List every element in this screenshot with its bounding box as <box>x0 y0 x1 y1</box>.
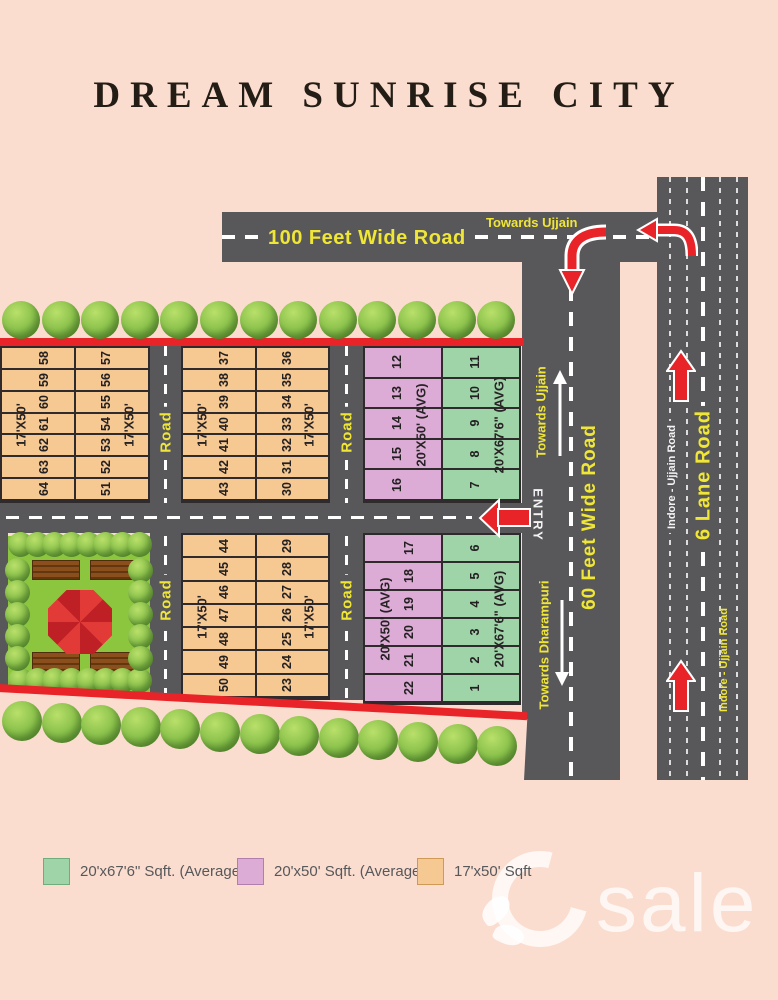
plot-number: 43 <box>217 482 231 496</box>
road-center-dashes <box>6 516 472 519</box>
plot-number: 64 <box>37 482 51 496</box>
plot-block-4: 4445464748495017'X50'2928272625242317'X5… <box>181 533 330 700</box>
plot-number: 31 <box>280 460 294 474</box>
plot-53: 53 <box>76 435 148 457</box>
legend-swatch-purple <box>237 858 264 885</box>
tree-icon <box>279 301 317 339</box>
plot-number: 11 <box>468 356 482 369</box>
plot-size-label: 17'X50' <box>194 403 209 447</box>
road-center-dashes <box>569 262 573 780</box>
plot-number: 27 <box>280 585 294 599</box>
plot-17: 17 <box>365 535 441 563</box>
plot-11: 11 <box>443 348 519 379</box>
plot-number: 25 <box>280 632 294 646</box>
plot-number: 9 <box>468 420 482 427</box>
plot-number: 6 <box>468 545 482 552</box>
plot-number: 24 <box>280 655 294 669</box>
tree-icon <box>200 712 240 752</box>
plot-4: 4 <box>443 591 519 619</box>
plot-35: 35 <box>257 370 329 392</box>
plot-number: 13 <box>390 386 404 400</box>
plot-number: 18 <box>402 569 416 583</box>
plot-54: 54 <box>76 414 148 436</box>
plot-21: 21 <box>365 647 441 675</box>
plot-column: 65432120'X67'6" (AVG) <box>441 535 519 703</box>
indore-ujjain-road-label-upper: Indore - Ujjain Road <box>665 421 679 533</box>
tree-icon <box>127 668 152 693</box>
plot-column: 3635343332313017'X50' <box>255 348 329 501</box>
plot-37: 37 <box>183 348 255 370</box>
plot-number: 10 <box>468 386 482 400</box>
plot-column: 121314151620'X50' (AVG) <box>365 348 441 501</box>
page-title: DREAM SUNRISE CITY <box>0 74 778 117</box>
plot-1: 1 <box>443 675 519 703</box>
plot-number: 19 <box>402 597 416 611</box>
tree-icon <box>279 716 319 756</box>
tree-icon <box>319 718 359 758</box>
tree-icon <box>160 301 198 339</box>
plot-size-label: 20'X50' (AVG) <box>414 383 429 466</box>
plot-27: 27 <box>257 582 329 605</box>
plot-25: 25 <box>257 628 329 651</box>
plot-5: 5 <box>443 563 519 591</box>
plot-size-label: 20'X67'6" (AVG) <box>492 376 507 473</box>
entry-label: ENTRY <box>531 488 546 542</box>
road-60-feet: Towards Ujjain 60 Feet Wide Road ENTRY T… <box>522 262 620 780</box>
plot-number: 30 <box>280 482 294 496</box>
road-6-lane-label: 6 Lane Road <box>692 406 717 544</box>
garden-park <box>8 536 150 698</box>
plot-number: 48 <box>217 632 231 646</box>
plot-number: 59 <box>37 373 51 387</box>
plot-column: 5756555453525117'X50' <box>74 348 148 501</box>
tree-icon <box>240 301 278 339</box>
tree-icon <box>319 301 357 339</box>
plot-10: 10 <box>443 379 519 410</box>
tree-icon <box>121 301 159 339</box>
tree-icon <box>438 724 478 764</box>
towards-dharampuri-label: Towards Dharampuri <box>537 580 552 709</box>
tree-icon <box>358 301 396 339</box>
plot-number: 55 <box>99 395 113 409</box>
plot-number: 34 <box>280 395 294 409</box>
legend-item-green: 20'x67'6" Sqft. (Average) <box>43 858 245 885</box>
plot-16: 16 <box>365 470 441 501</box>
plot-38: 38 <box>183 370 255 392</box>
plot-number: 12 <box>390 355 404 369</box>
lane-line <box>736 177 738 780</box>
towards-ujjain-label-60ft: Towards Ujjain <box>534 366 549 458</box>
plot-33: 33 <box>257 414 329 436</box>
plot-column: 5859606162636417'X50' <box>2 348 74 501</box>
plot-number: 62 <box>37 438 51 452</box>
tree-icon <box>42 301 80 339</box>
plot-number: 38 <box>217 373 231 387</box>
plot-20: 20 <box>365 619 441 647</box>
tree-icon <box>121 707 161 747</box>
plot-number: 46 <box>217 585 231 599</box>
plot-number: 20 <box>402 625 416 639</box>
plot-number: 49 <box>217 655 231 669</box>
plot-34: 34 <box>257 392 329 414</box>
direction-down-arrow-icon <box>554 596 570 688</box>
plot-26: 26 <box>257 605 329 628</box>
plot-8: 8 <box>443 440 519 471</box>
plot-number: 39 <box>217 395 231 409</box>
plot-51: 51 <box>76 479 148 501</box>
plot-number: 8 <box>468 451 482 458</box>
tree-icon <box>128 646 153 671</box>
turn-down-arrow-icon <box>548 222 610 296</box>
plot-number: 14 <box>390 417 404 431</box>
plot-number: 40 <box>217 417 231 431</box>
plot-number: 58 <box>37 351 51 365</box>
plot-column: 4445464748495017'X50' <box>183 535 255 698</box>
umbrella-gazebo <box>48 590 112 654</box>
tree-icon <box>2 301 40 339</box>
bench <box>32 560 80 580</box>
plot-2: 2 <box>443 647 519 675</box>
plot-19: 19 <box>365 591 441 619</box>
plot-12: 12 <box>365 348 441 379</box>
legend-item-purple: 20'x50' Sqft. (Average) <box>237 858 425 885</box>
road-6-lane: Indore - Ujjain Road 6 Lane Road Indore … <box>657 177 748 780</box>
plot-number: 1 <box>468 685 482 692</box>
plot-column: 2928272625242317'X50' <box>255 535 329 698</box>
plot-size-label: 17'X50' <box>13 403 28 447</box>
plot-18: 18 <box>365 563 441 591</box>
plot-45: 45 <box>183 558 255 581</box>
tree-icon <box>5 646 30 671</box>
plot-size-label: 17'X50' <box>302 595 317 639</box>
plot-number: 7 <box>468 481 482 488</box>
plot-number: 61 <box>37 417 51 431</box>
plot-13: 13 <box>365 379 441 410</box>
plot-57: 57 <box>76 348 148 370</box>
plot-number: 4 <box>468 601 482 608</box>
road-60-feet-label: 60 Feet Wide Road <box>578 420 602 614</box>
plot-7: 7 <box>443 470 519 501</box>
plot-9: 9 <box>443 409 519 440</box>
indore-ujjain-road-label-lower: Indore - Ujjain Road <box>718 608 730 712</box>
plot-number: 33 <box>280 417 294 431</box>
plot-64: 64 <box>2 479 74 501</box>
plot-52: 52 <box>76 457 148 479</box>
legend-item-orange: 17'x50' Sqft <box>417 858 531 885</box>
plot-number: 23 <box>280 678 294 692</box>
legend-label: 20'x67'6" Sqft. (Average) <box>80 863 245 880</box>
boundary-line-top <box>0 338 524 346</box>
tree-icon <box>398 301 436 339</box>
plot-42: 42 <box>183 457 255 479</box>
plot-size-label: 17'X50' <box>122 403 137 447</box>
legend-label: 20'x50' Sqft. (Average) <box>274 863 425 880</box>
plot-15: 15 <box>365 440 441 471</box>
plot-14: 14 <box>365 409 441 440</box>
plot-number: 35 <box>280 373 294 387</box>
plot-number: 28 <box>280 562 294 576</box>
plot-30: 30 <box>257 479 329 501</box>
plot-block-5: 17181920212220'X50' (AVG)65432120'X67'6"… <box>363 533 521 705</box>
plot-number: 56 <box>99 373 113 387</box>
plot-number: 26 <box>280 609 294 623</box>
plot-column: 111098720'X67'6" (AVG) <box>441 348 519 501</box>
lane-up-arrow-icon <box>666 349 696 403</box>
plot-block-3: 121314151620'X50' (AVG)111098720'X67'6" … <box>363 346 521 503</box>
plot-22: 22 <box>365 675 441 703</box>
plot-number: 44 <box>217 539 231 553</box>
plot-block-2: 3738394041424317'X50'3635343332313017'X5… <box>181 346 330 503</box>
plot-29: 29 <box>257 535 329 558</box>
tree-icon <box>240 714 280 754</box>
plot-number: 47 <box>217 609 231 623</box>
plot-number: 2 <box>468 657 482 664</box>
legend-swatch-green <box>43 858 70 885</box>
site-plan-canvas: DREAM SUNRISE CITY 100 Feet Wide Road To… <box>0 0 778 1000</box>
plot-number: 15 <box>390 447 404 461</box>
plot-number: 22 <box>402 681 416 695</box>
plot-column: 3738394041424317'X50' <box>183 348 255 501</box>
plot-3: 3 <box>443 619 519 647</box>
legend-label: 17'x50' Sqft <box>454 863 531 880</box>
watermark-text: sale <box>596 857 758 951</box>
tree-icon <box>398 722 438 762</box>
plot-number: 29 <box>280 539 294 553</box>
plot-28: 28 <box>257 558 329 581</box>
plot-column: 17181920212220'X50' (AVG) <box>365 535 441 703</box>
plot-number: 16 <box>390 478 404 492</box>
road-internal-horizontal <box>0 503 522 533</box>
plot-number: 21 <box>402 653 416 667</box>
plot-number: 60 <box>37 395 51 409</box>
plot-24: 24 <box>257 651 329 674</box>
plot-number: 51 <box>99 482 113 496</box>
plot-number: 5 <box>468 573 482 580</box>
plot-number: 54 <box>99 417 113 431</box>
entry-arrow-icon <box>478 498 532 538</box>
plot-size-label: 20'X67'6" (AVG) <box>492 571 507 668</box>
plot-block-1: 5859606162636417'X50'5756555453525117'X5… <box>0 346 150 503</box>
plot-number: 42 <box>217 460 231 474</box>
plot-number: 17 <box>402 541 416 555</box>
plot-23: 23 <box>257 675 329 698</box>
plot-6: 6 <box>443 535 519 563</box>
tree-icon <box>127 532 152 557</box>
plot-number: 41 <box>217 438 231 452</box>
plot-number: 52 <box>99 460 113 474</box>
tree-icon <box>438 301 476 339</box>
lane-up-arrow-icon <box>666 659 696 713</box>
plot-number: 50 <box>217 678 231 692</box>
plot-size-label: 20'X50' (AVG) <box>377 577 392 660</box>
plot-size-label: 17'X50' <box>302 403 317 447</box>
plot-63: 63 <box>2 457 74 479</box>
tree-icon <box>81 301 119 339</box>
plot-44: 44 <box>183 535 255 558</box>
plot-32: 32 <box>257 435 329 457</box>
plot-number: 37 <box>217 351 231 365</box>
plot-59: 59 <box>2 370 74 392</box>
plot-number: 3 <box>468 629 482 636</box>
plot-43: 43 <box>183 479 255 501</box>
road-word-label: Road <box>157 575 176 625</box>
plot-31: 31 <box>257 457 329 479</box>
plot-58: 58 <box>2 348 74 370</box>
plot-56: 56 <box>76 370 148 392</box>
tree-icon <box>200 301 238 339</box>
plot-number: 32 <box>280 438 294 452</box>
legend-swatch-orange <box>417 858 444 885</box>
road-word-label: Road <box>338 407 357 457</box>
plot-49: 49 <box>183 651 255 674</box>
road-word-label: Road <box>157 407 176 457</box>
plot-36: 36 <box>257 348 329 370</box>
road-100-feet-label: 100 Feet Wide Road <box>264 226 470 251</box>
plot-size-label: 17'X50' <box>194 595 209 639</box>
road-word-label: Road <box>338 575 357 625</box>
plot-number: 45 <box>217 562 231 576</box>
tree-icon <box>42 703 82 743</box>
plot-number: 36 <box>280 351 294 365</box>
plot-number: 57 <box>99 351 113 365</box>
direction-up-arrow-icon <box>552 368 568 460</box>
tree-icon <box>477 301 515 339</box>
plot-number: 63 <box>37 460 51 474</box>
tree-icon <box>2 701 42 741</box>
plot-55: 55 <box>76 392 148 414</box>
turn-left-arrow-icon <box>636 216 698 262</box>
plot-number: 53 <box>99 438 113 452</box>
